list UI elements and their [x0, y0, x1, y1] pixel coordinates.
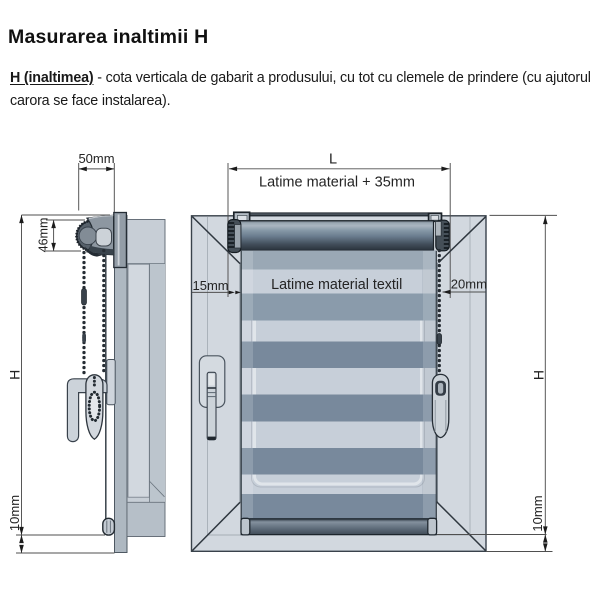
svg-text:H: H: [531, 370, 547, 380]
svg-text:15mm: 15mm: [193, 278, 229, 293]
svg-text:L: L: [329, 152, 337, 168]
svg-text:H: H: [7, 370, 23, 380]
svg-text:Latime material + 35mm: Latime material + 35mm: [259, 175, 415, 191]
svg-text:46mm: 46mm: [37, 218, 51, 253]
svg-text:Latime material textil: Latime material textil: [271, 277, 402, 293]
svg-text:10mm: 10mm: [530, 495, 545, 531]
svg-text:10mm: 10mm: [7, 495, 22, 531]
svg-text:20mm: 20mm: [451, 277, 487, 292]
svg-text:50mm: 50mm: [78, 151, 114, 166]
